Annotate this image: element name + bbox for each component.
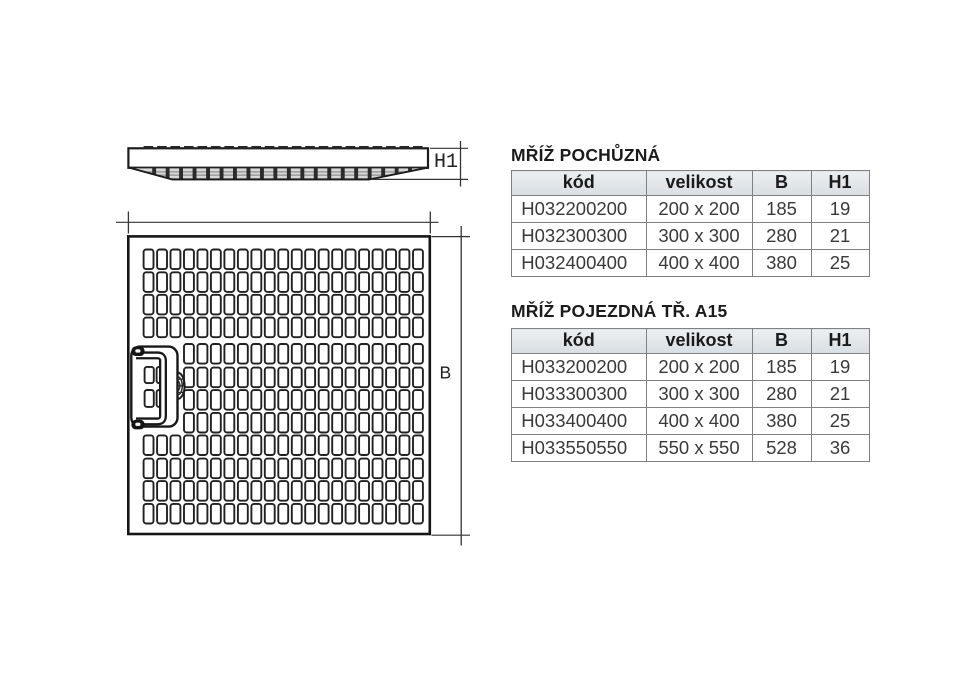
svg-text:B: B bbox=[440, 363, 452, 383]
svg-text:H1: H1 bbox=[434, 151, 458, 174]
